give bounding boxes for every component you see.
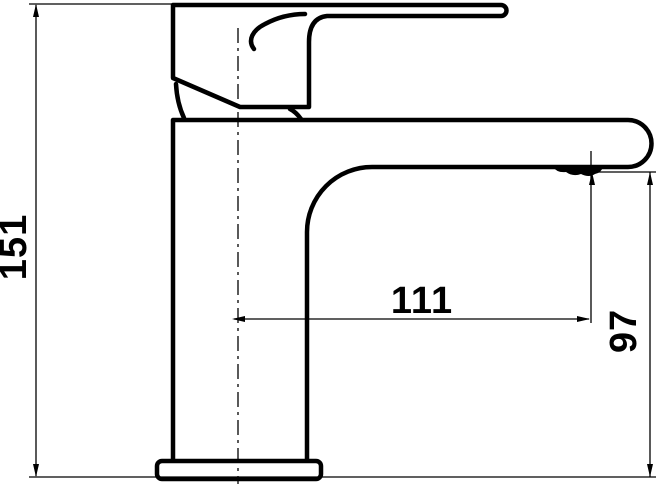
- arrow-111-right: [577, 316, 590, 322]
- arrow-151-bottom: [33, 464, 39, 477]
- base-flange: [157, 461, 321, 479]
- dimension-arrows-group: [33, 4, 653, 477]
- handle-curve-detail: [251, 14, 305, 49]
- handle-base-right-fillet: [290, 109, 301, 119]
- dimension-label-spout-reach: 111: [391, 280, 453, 322]
- faucet-outline-group: [157, 5, 652, 479]
- dimension-lines-group: [29, 4, 656, 484]
- dimension-label-spout-outlet-height: 97: [603, 309, 645, 353]
- arrow-97-bottom: [647, 464, 653, 477]
- technical-drawing-canvas: 151 111 97: [0, 0, 657, 484]
- arrow-97-top: [647, 172, 653, 185]
- dimension-label-overall-height: 151: [0, 214, 35, 280]
- faucet-dimension-drawing: 151 111 97: [0, 0, 657, 484]
- arrow-151-top: [33, 4, 39, 17]
- handle-lever-outline: [173, 5, 507, 107]
- handle-base-left-fillet: [176, 84, 184, 118]
